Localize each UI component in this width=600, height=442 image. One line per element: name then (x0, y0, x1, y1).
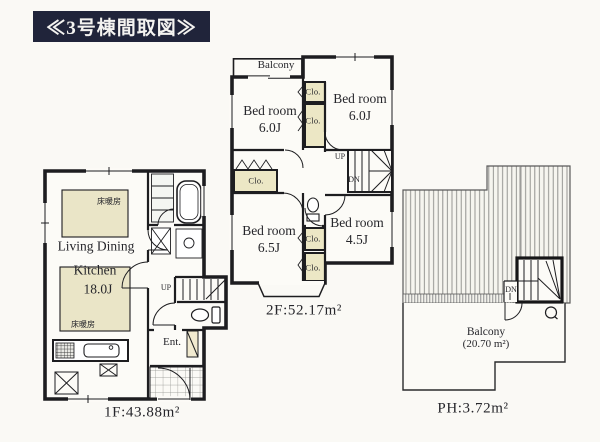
toilet-2f (307, 198, 319, 221)
page-title: ≪3号棟間取図≫ (33, 11, 210, 42)
floor1-plan (41, 167, 226, 403)
stairs-up-label-1f: UP (161, 283, 171, 293)
bay-window (258, 281, 325, 297)
bedroom-nw-size: 6.0J (243, 120, 297, 137)
bedroom-sw-size: 6.5J (242, 240, 296, 257)
penthouse-plan (403, 166, 570, 390)
balcony-label-2f: Balcony (258, 59, 295, 73)
closet-label-5: Clo. (305, 263, 320, 274)
room-label-kitchen: Kitchen (74, 263, 117, 280)
room-label-bedroom-ne: Bed room 6.0J (333, 91, 387, 125)
kitchen-counter (53, 340, 128, 361)
floorplan-drawing (0, 0, 600, 442)
room-label-bedroom-sw: Bed room 6.5J (242, 223, 296, 257)
shoe-cabinet (187, 331, 198, 357)
room-label-living-dining: Living Dining (58, 239, 135, 256)
closet-label-3: Clo. (248, 176, 263, 187)
balcony-label-ph: Balcony (467, 325, 505, 339)
stairs-2f (348, 150, 392, 192)
floor1-area-label: 1F:43.88m² (104, 404, 180, 423)
bedroom-ne-name: Bed room (333, 91, 387, 108)
room-label-bedroom-se: Bed room 4.5J (330, 215, 384, 249)
balcony-area-ph: (20.70 m²) (463, 338, 510, 352)
floor2-area-label: 2F:52.17m² (266, 302, 342, 321)
eave-band (403, 294, 513, 303)
stove (56, 343, 74, 358)
penthouse-area-label: PH:3.72m² (437, 400, 508, 419)
floor-heating-label-top: 床暖房 (97, 197, 121, 207)
bedroom-sw-name: Bed room (242, 223, 296, 240)
stairs-down-label-ph: DN (505, 285, 517, 295)
bath-counter (152, 174, 174, 222)
room-size-kitchen: 18.0J (84, 282, 113, 299)
room-label-entrance: Ent. (163, 336, 181, 350)
closet-label-1: Clo. (305, 87, 320, 98)
bedroom-se-size: 4.5J (330, 232, 384, 249)
bathtub (177, 181, 201, 223)
entrance-porch (150, 367, 203, 398)
closet-label-2: Clo. (305, 116, 320, 127)
bedroom-se-name: Bed room (330, 215, 384, 232)
stairs-down-label-2f: DN (348, 175, 360, 185)
closet-label-4: Clo. (305, 234, 320, 245)
kitchen-sink (84, 344, 119, 357)
stairs-ph (517, 258, 562, 302)
bedroom-nw-name: Bed room (243, 103, 297, 120)
stairs-up-label-2f: UP (335, 152, 345, 162)
vanity-sink (176, 229, 202, 258)
room-label-bedroom-nw: Bed room 6.0J (243, 103, 297, 137)
bedroom-ne-size: 6.0J (333, 108, 387, 125)
floor-heating-label-bottom: 床暖房 (71, 320, 95, 330)
